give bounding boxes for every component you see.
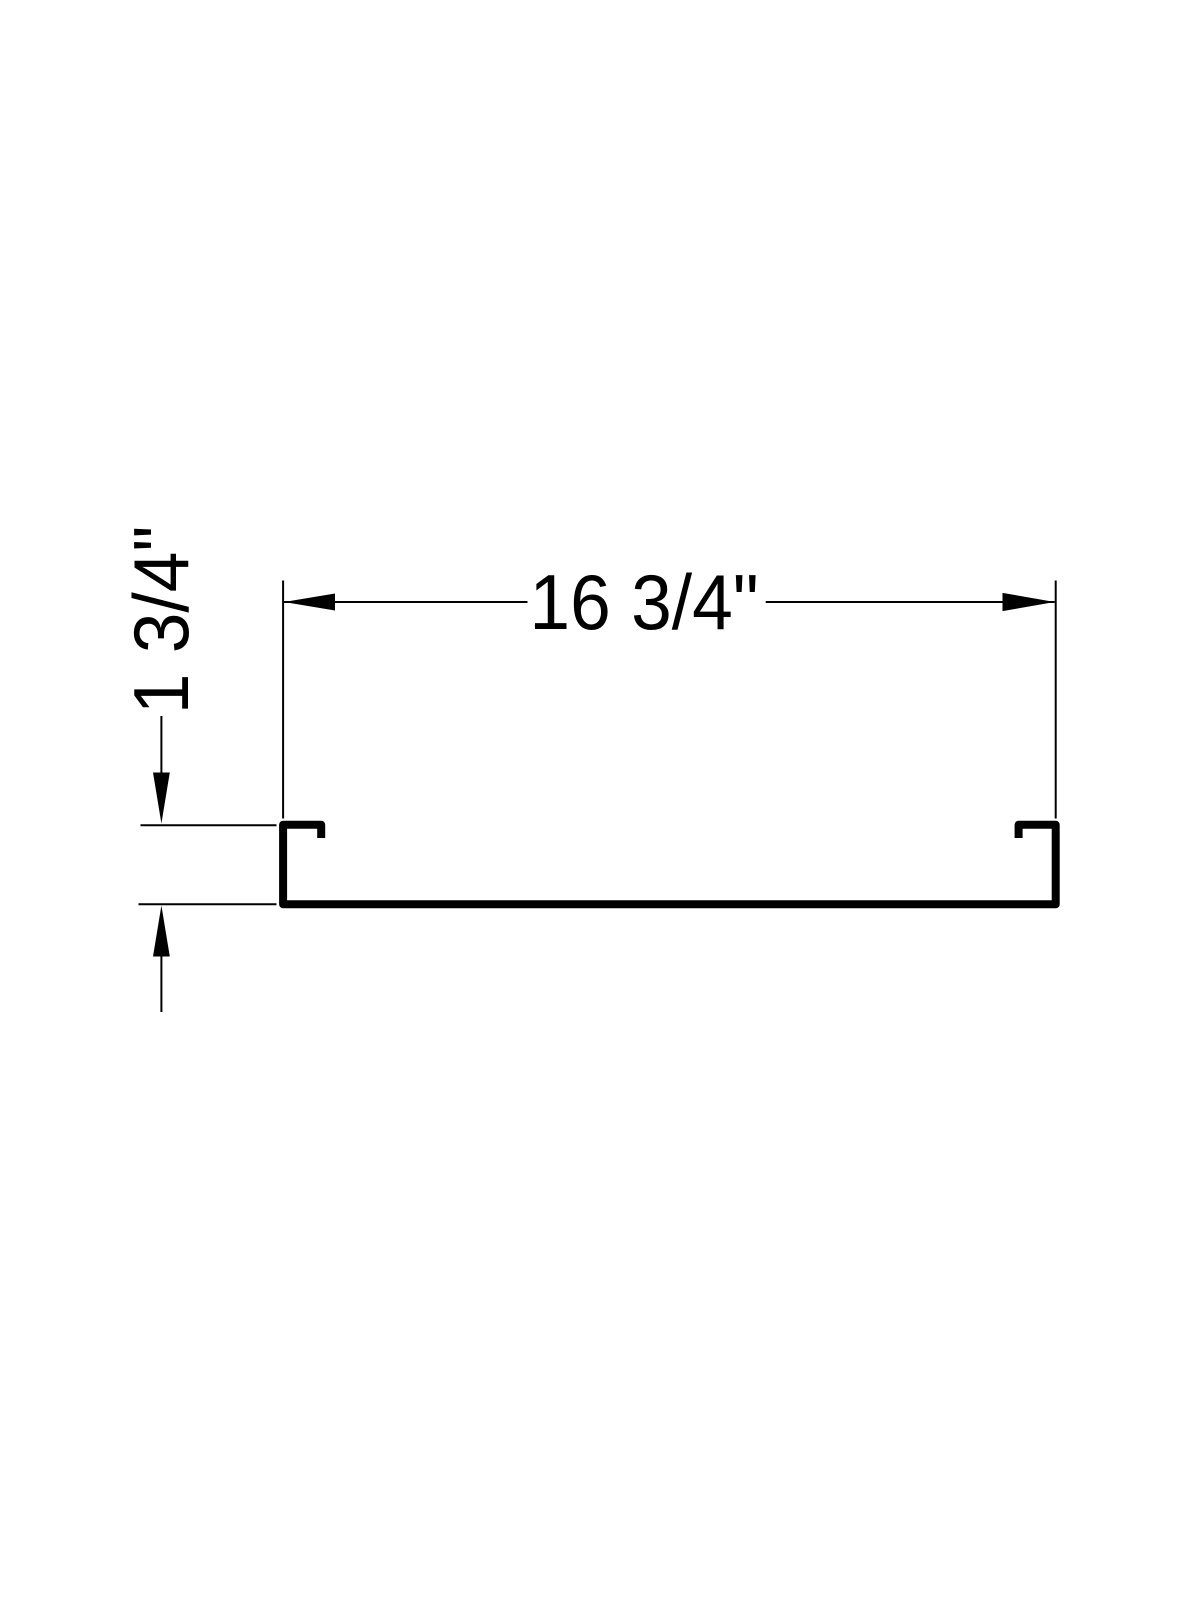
svg-text:16 3/4": 16 3/4" <box>529 559 758 645</box>
svg-text:1 3/4": 1 3/4" <box>118 526 204 715</box>
